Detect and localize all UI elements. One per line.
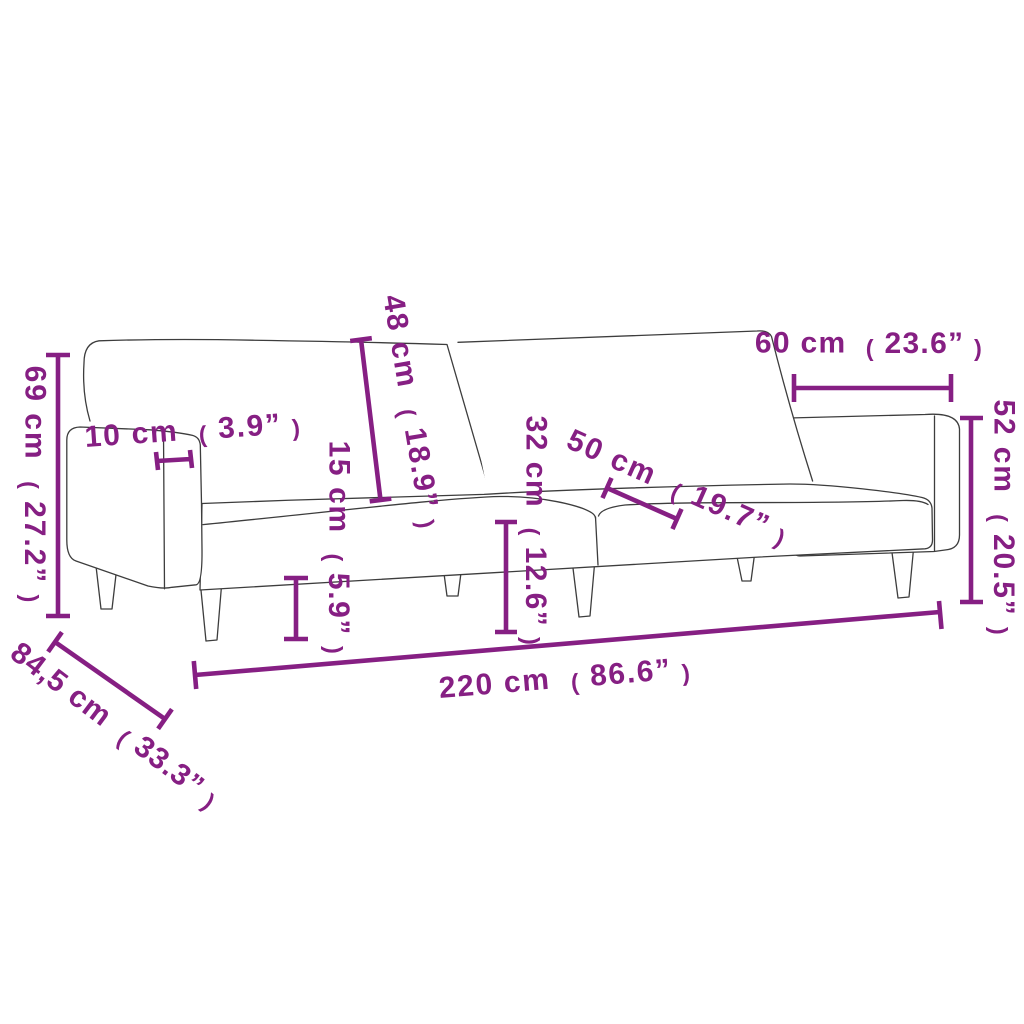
svg-text:15 cm ( 5.9” ): 15 cm ( 5.9” ): [321, 441, 356, 656]
